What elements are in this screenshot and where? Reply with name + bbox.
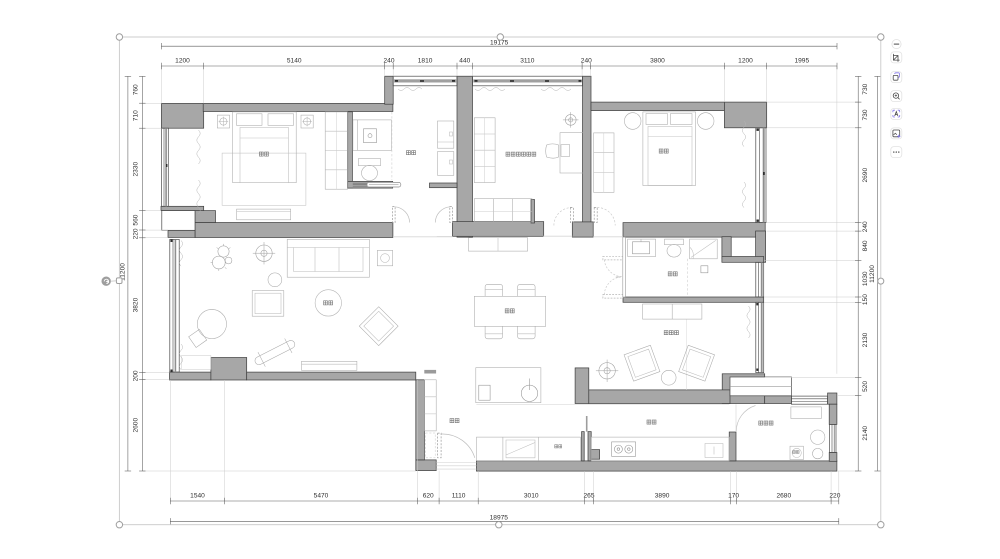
svg-text:3010: 3010 [524,493,539,500]
svg-text:240: 240 [581,58,592,65]
svg-text:265: 265 [583,493,594,500]
svg-text:5140: 5140 [287,58,302,65]
svg-text:240: 240 [383,58,394,65]
svg-text:1200: 1200 [738,58,753,65]
svg-text:3800: 3800 [650,58,665,65]
svg-text:760: 760 [133,84,140,95]
svg-text:1810: 1810 [418,58,433,65]
svg-text:3820: 3820 [133,297,140,312]
svg-text:730: 730 [862,109,869,120]
svg-text:150: 150 [862,294,869,305]
svg-text:2330: 2330 [133,162,140,177]
svg-text:710: 710 [133,110,140,121]
svg-text:520: 520 [862,381,869,392]
svg-text:3890: 3890 [655,493,670,500]
svg-text:560: 560 [133,214,140,225]
svg-text:2600: 2600 [133,418,140,433]
svg-text:840: 840 [862,240,869,251]
svg-text:2690: 2690 [862,168,869,183]
svg-text:11200: 11200 [869,265,876,283]
svg-text:220: 220 [133,228,140,239]
svg-text:240: 240 [862,221,869,232]
svg-text:5470: 5470 [314,493,329,500]
svg-text:170: 170 [728,493,739,500]
svg-text:2140: 2140 [862,426,869,441]
svg-text:440: 440 [459,58,470,65]
svg-text:1110: 1110 [452,493,466,500]
svg-text:620: 620 [423,493,434,500]
svg-text:1540: 1540 [190,493,205,500]
svg-text:200: 200 [133,370,140,381]
svg-text:2130: 2130 [862,332,869,347]
svg-text:730: 730 [862,83,869,94]
svg-text:3110: 3110 [520,58,535,65]
svg-text:2680: 2680 [776,493,791,500]
svg-text:1200: 1200 [175,58,190,65]
svg-text:18975: 18975 [490,515,509,522]
svg-text:1995: 1995 [794,58,809,65]
svg-text:1030: 1030 [862,271,869,286]
svg-text:220: 220 [829,493,840,500]
